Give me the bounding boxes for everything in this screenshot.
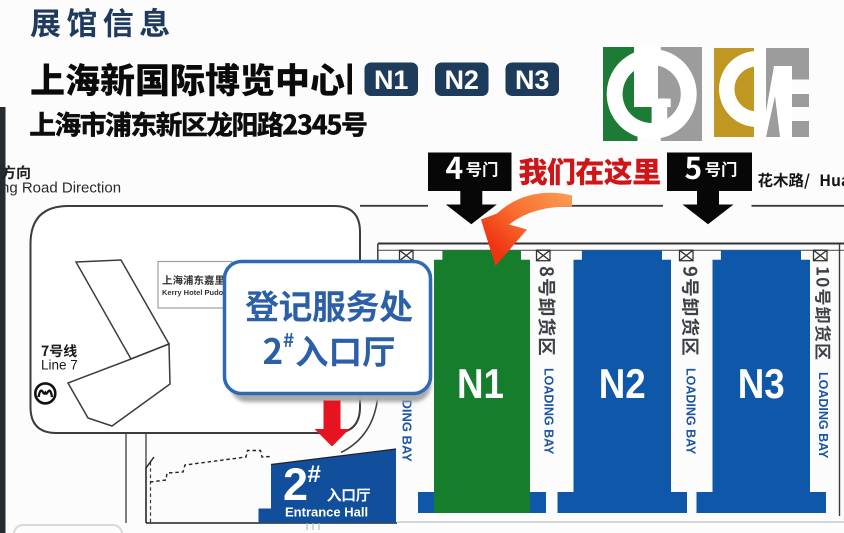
- svg-text:ng Road Direction: ng Road Direction: [1, 180, 121, 197]
- svg-text:N2: N2: [444, 65, 479, 95]
- svg-text:N3: N3: [515, 65, 550, 95]
- svg-text:LOADING BAY: LOADING BAY: [816, 372, 830, 459]
- svg-text:2: 2: [283, 459, 308, 510]
- svg-text:N2: N2: [599, 360, 646, 407]
- svg-text:LOADING BAY: LOADING BAY: [542, 368, 556, 455]
- svg-text:N1: N1: [374, 65, 409, 95]
- svg-text:Entrance Hall: Entrance Hall: [285, 505, 368, 520]
- svg-text:Line 7: Line 7: [41, 358, 78, 373]
- svg-text:N3: N3: [738, 360, 785, 407]
- svg-text:#: #: [308, 461, 321, 488]
- svg-text:Kerry Hotel Pudong: Kerry Hotel Pudong: [162, 288, 233, 297]
- svg-text:LOADING BAY: LOADING BAY: [684, 368, 698, 455]
- svg-text:N1: N1: [457, 360, 504, 407]
